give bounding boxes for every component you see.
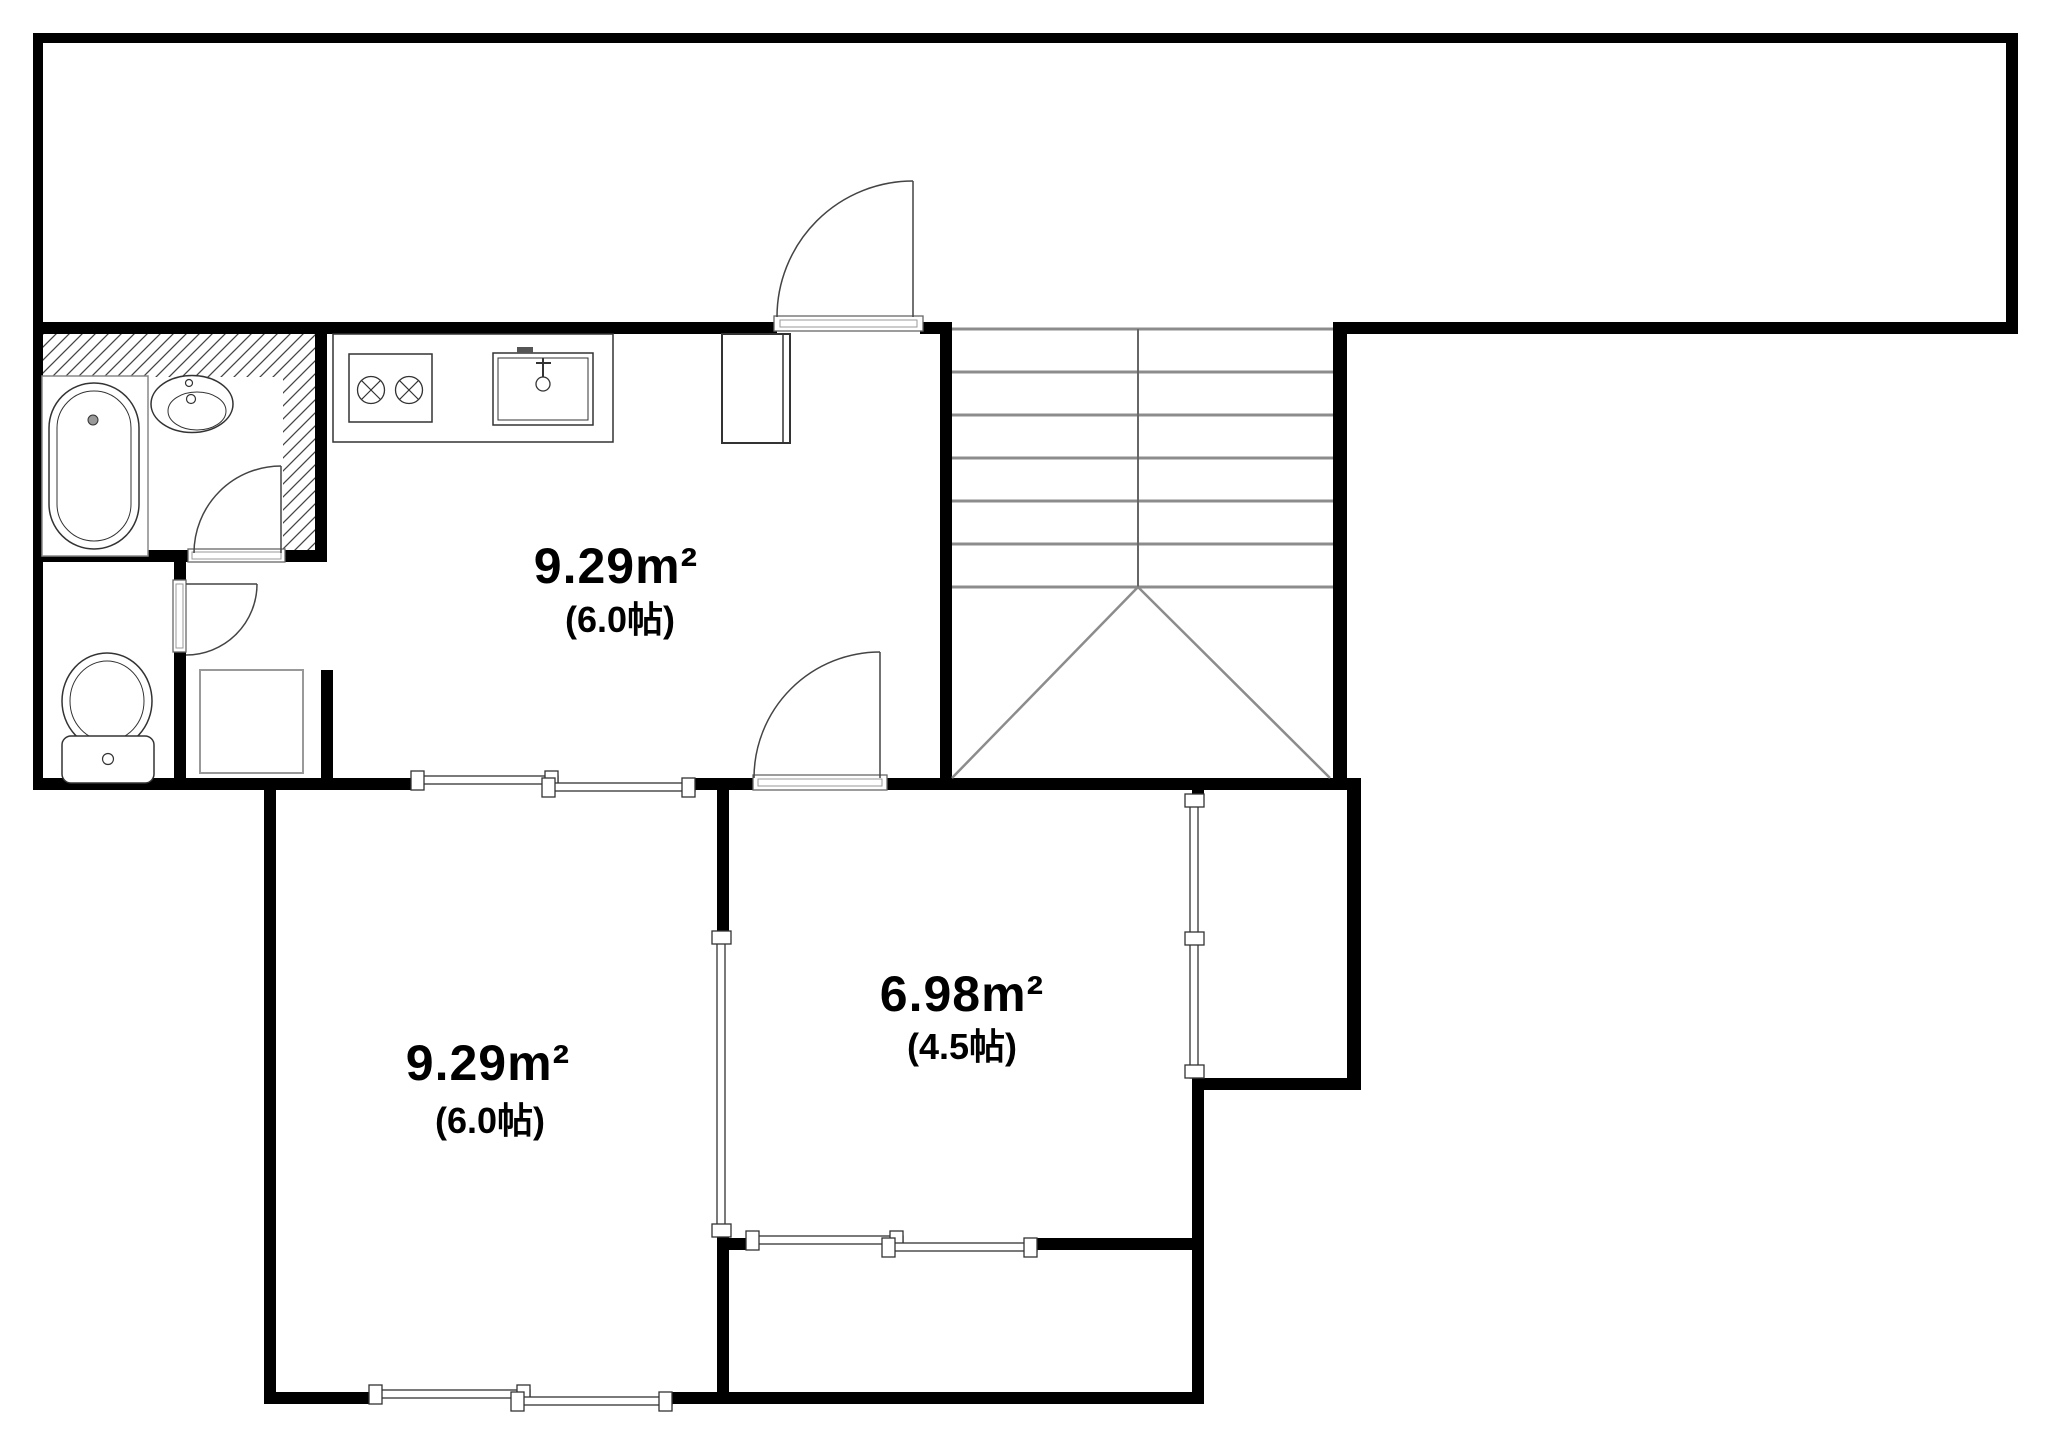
- bathroom-door: [188, 466, 285, 562]
- floor-plan: 9.29m² (6.0帖) 9.29m² (6.0帖) 6.98m² (4.5帖…: [0, 0, 2048, 1440]
- bathtub-icon: [42, 376, 148, 556]
- lower-right-room-area-label: 6.98m²: [880, 965, 1044, 1023]
- kitchen-room-area-label: 9.29m²: [534, 537, 698, 595]
- lower-left-room-tatami-label: (6.0帖): [435, 1092, 545, 1144]
- floor-plan-canvas: [0, 0, 2048, 1440]
- staircase-icon: [952, 329, 1333, 778]
- walls: [33, 33, 2018, 1404]
- washbasin-icon: [151, 376, 233, 433]
- lower-right-room-tatami-label: (4.5帖): [907, 1018, 1017, 1070]
- room-door: [753, 652, 887, 790]
- entrance-storage-icon: [722, 334, 790, 443]
- toilet-door: [173, 580, 257, 655]
- lower-left-room-area-label: 9.29m²: [406, 1034, 570, 1092]
- two-burner-stove-icon: [349, 354, 432, 422]
- kitchen-sink-icon: [493, 347, 593, 425]
- toilet-icon: [62, 653, 154, 783]
- kitchen-room-tatami-label: (6.0帖): [565, 591, 675, 643]
- washing-machine-pan-icon: [200, 670, 303, 773]
- entrance-door: [774, 181, 923, 331]
